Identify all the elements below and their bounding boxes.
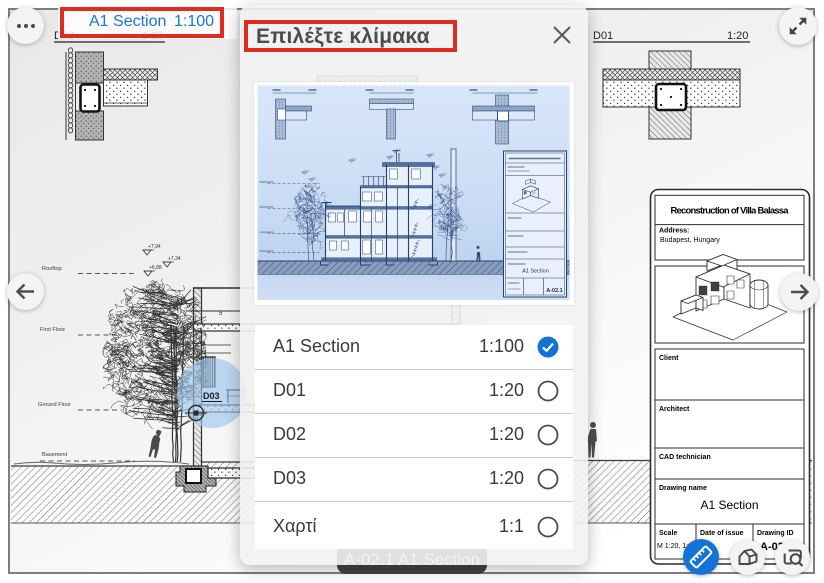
svg-text:CAD technician: CAD technician [659, 454, 711, 461]
svg-text:D01: D01 [593, 30, 613, 42]
svg-text:Budapest, Hungary: Budapest, Hungary [660, 237, 720, 244]
svg-text:+7,94: +7,94 [148, 244, 161, 250]
svg-text:Basement: Basement [42, 452, 68, 458]
svg-text:Ground Floor: Ground Floor [38, 402, 71, 408]
svg-text:Drawing name: Drawing name [659, 485, 707, 492]
svg-text:Drawing ID: Drawing ID [757, 530, 794, 537]
svg-text:Scale: Scale [659, 530, 677, 537]
svg-text:A-02.1: A-02.1 [546, 288, 563, 294]
svg-text:Reconstruction of Villa Balass: Reconstruction of Villa Balassa [671, 205, 790, 216]
svg-text:Address:: Address: [659, 228, 689, 235]
svg-text:Architect: Architect [659, 406, 690, 413]
svg-text:Date of issue: Date of issue [700, 530, 744, 537]
svg-text:Client: Client [659, 355, 679, 362]
svg-text:A1 Section: A1 Section [522, 269, 549, 275]
svg-text:First Floor: First Floor [40, 327, 65, 333]
svg-text:A1 Section: A1 Section [700, 498, 758, 512]
svg-text:Rooftop: Rooftop [42, 266, 62, 272]
svg-text:D03: D03 [203, 391, 220, 401]
svg-text:+6,88: +6,88 [149, 265, 162, 271]
svg-text:1:20: 1:20 [727, 30, 748, 42]
svg-text:+7,34: +7,34 [168, 256, 181, 262]
